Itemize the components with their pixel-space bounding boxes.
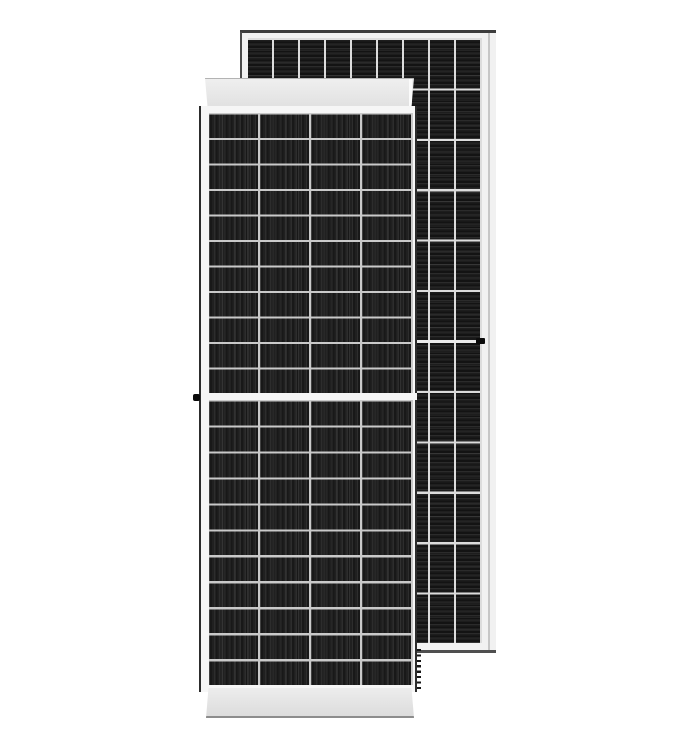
front-panel-bottom-frame [206,688,414,718]
front-panel-top-frame [205,78,414,107]
front-panel-cell-grid-lower [209,400,413,686]
solar-panel-front [199,78,417,718]
back-panel-top-edge [240,30,496,33]
front-grounding-dot [193,394,200,401]
front-panel-body [199,106,417,692]
front-panel-cell-grid-upper [209,113,413,394]
back-grounding-tick [476,338,485,344]
dashed-hidden-edge [417,649,421,691]
back-panel-frame-line [488,33,490,650]
product-image-canvas [0,0,684,748]
